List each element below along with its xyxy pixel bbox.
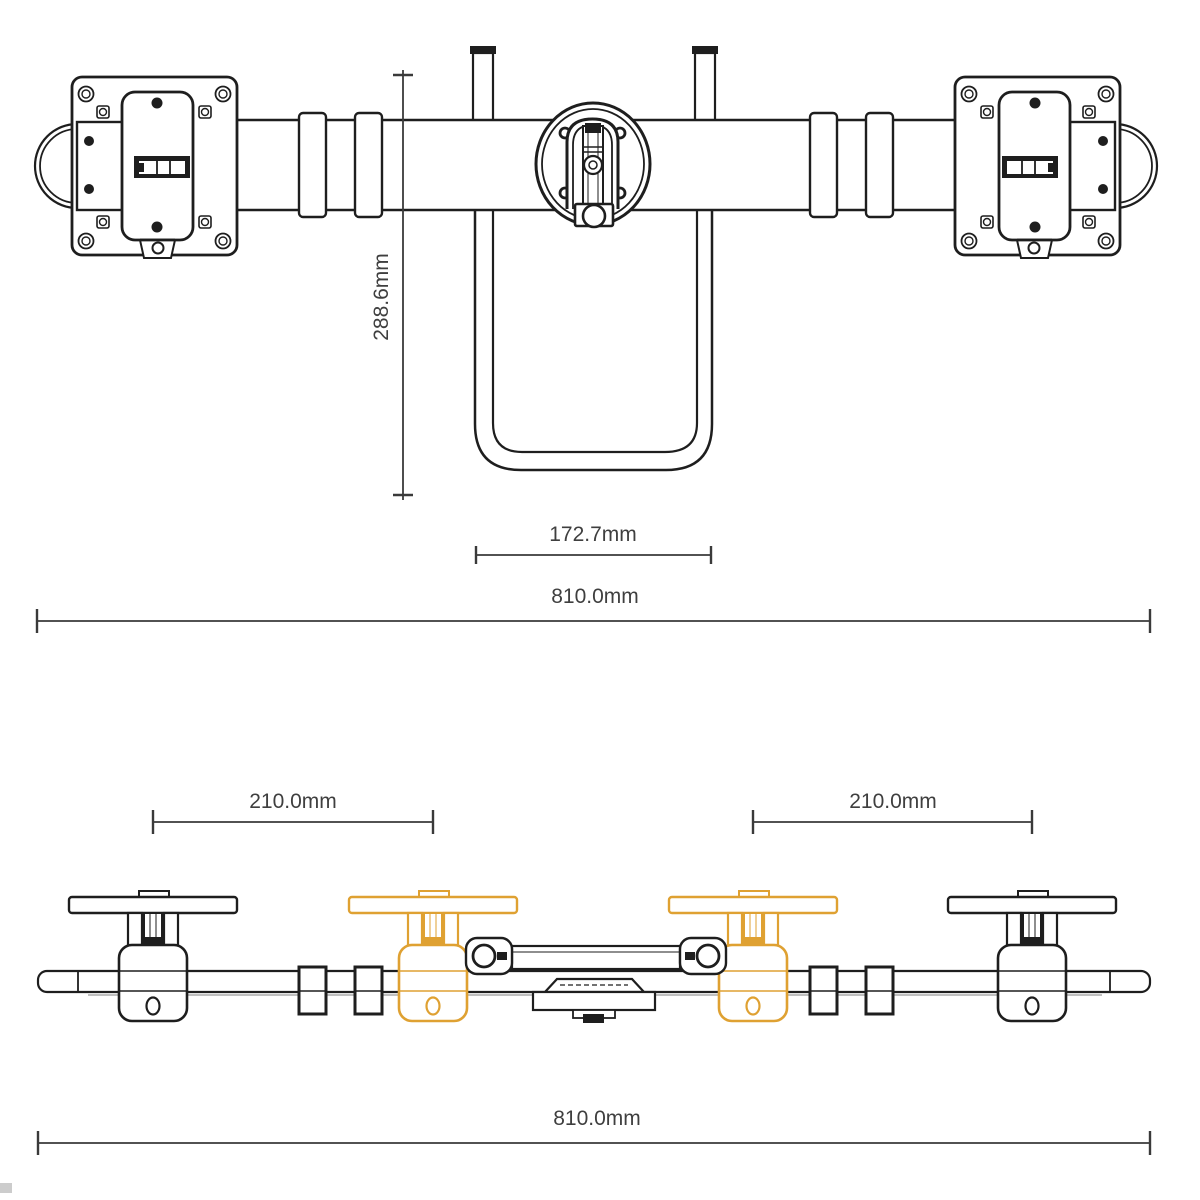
monitor-head-right-outer (948, 891, 1116, 1021)
slider-lock-left (134, 156, 190, 178)
dimension-left-arm: 210.0mm (153, 790, 433, 834)
right-arm-dimension-label: 210.0mm (849, 790, 937, 813)
clamp-fork (567, 119, 618, 227)
left-arm-dimension-label: 210.0mm (249, 790, 337, 813)
dimension-right-arm: 210.0mm (753, 790, 1032, 834)
top-view-drawing: 210.0mm 210.0mm 810.0mm (0, 790, 1150, 1193)
dimension-center-offset: 172.7mm (476, 523, 711, 564)
vesa-assembly-left (35, 77, 237, 258)
left-pole (470, 46, 496, 123)
center-link-assembly (466, 938, 726, 974)
center-pole-mount (536, 103, 650, 227)
dimension-total-width-front: 810.0mm (37, 585, 1150, 633)
height-dimension-label: 288.6mm (370, 253, 393, 341)
monitor-head-left-outer (69, 891, 237, 1021)
u-bracket (475, 210, 712, 470)
center-clamp-body (533, 979, 655, 1023)
slider-lock-right (1002, 156, 1058, 178)
total-width-front-label: 810.0mm (551, 585, 639, 608)
right-pole (692, 46, 718, 123)
dimension-total-width-top: 810.0mm (38, 1107, 1150, 1155)
front-view-drawing: 288.6mm 172.7mm 810.0mm (35, 46, 1157, 633)
technical-drawing-canvas: 288.6mm 172.7mm 810.0mm (0, 0, 1200, 1200)
center-offset-dimension-label: 172.7mm (549, 523, 637, 546)
bracket-tab-right (1017, 240, 1052, 258)
vesa-assembly-right (955, 77, 1157, 258)
bracket-tab-left (140, 240, 175, 258)
total-width-top-label: 810.0mm (553, 1107, 641, 1130)
scan-artifact (0, 1183, 12, 1193)
